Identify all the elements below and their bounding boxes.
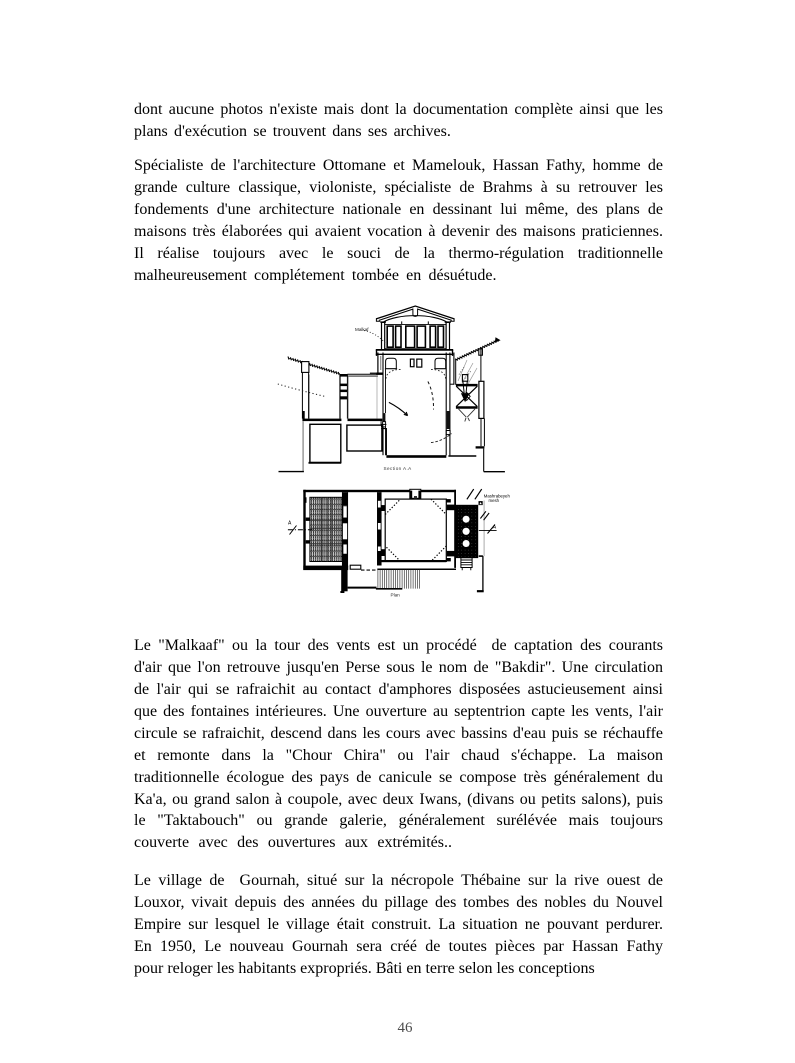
svg-text:Plan: Plan xyxy=(391,592,401,597)
svg-text:mesh: mesh xyxy=(489,498,500,503)
svg-text:Section A.A: Section A.A xyxy=(384,466,413,471)
svg-text:A: A xyxy=(288,521,292,527)
svg-text:A: A xyxy=(493,525,497,531)
